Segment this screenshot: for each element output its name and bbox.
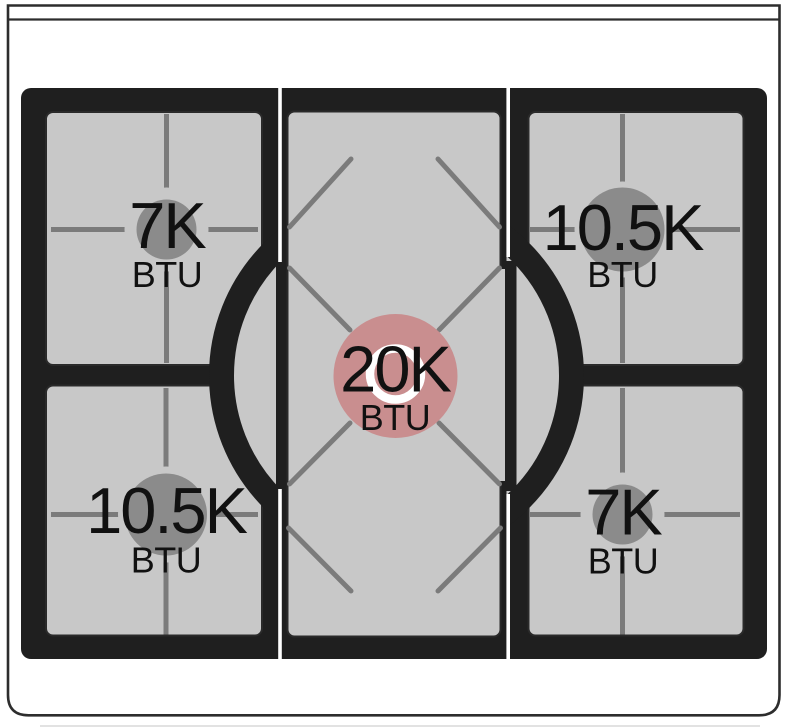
svg-text:BTU: BTU: [588, 541, 659, 582]
svg-text:7K: 7K: [129, 189, 206, 262]
svg-text:BTU: BTU: [587, 254, 658, 295]
svg-text:BTU: BTU: [131, 540, 202, 581]
svg-text:10.5K: 10.5K: [86, 474, 248, 547]
svg-text:7K: 7K: [585, 476, 662, 549]
svg-text:BTU: BTU: [132, 254, 203, 295]
svg-text:20K: 20K: [340, 333, 451, 406]
svg-text:BTU: BTU: [360, 397, 431, 438]
